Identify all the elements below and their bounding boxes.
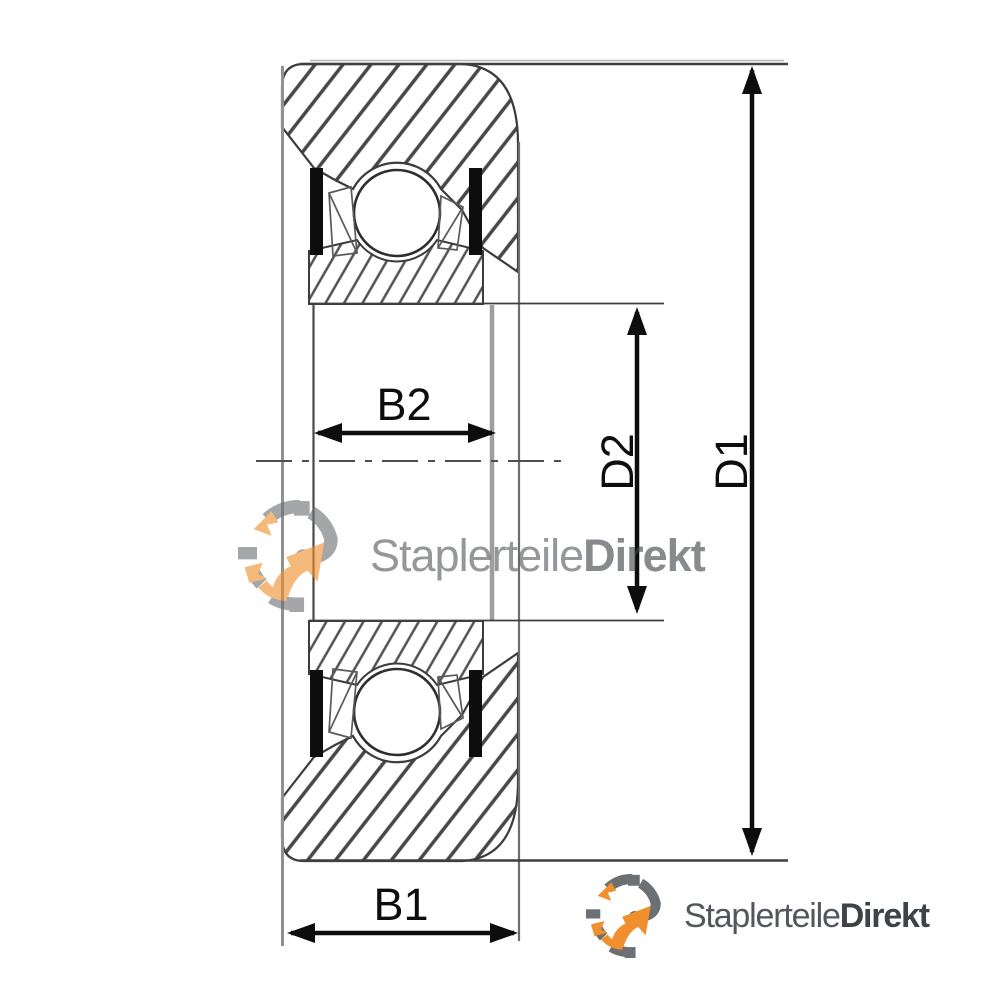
watermark-brand-bold: Direkt bbox=[583, 530, 705, 581]
ball-top bbox=[354, 170, 440, 256]
b1-arrowhead-right bbox=[490, 923, 518, 943]
dimension-label-b1: B1 bbox=[373, 879, 428, 930]
upper-bearing-section bbox=[282, 64, 518, 304]
b1-arrowhead-left bbox=[287, 923, 315, 943]
page: B2 B1 D2 D1 bbox=[0, 0, 1000, 1000]
footer-brand-logo: StaplerteileDirekt bbox=[586, 874, 929, 958]
d2-arrowhead-top bbox=[627, 307, 647, 335]
dimension-b1: B1 bbox=[287, 879, 518, 943]
seal-top-left bbox=[310, 168, 323, 255]
logo-gear-arrows-icon bbox=[586, 874, 670, 958]
dimension-d1: D1 bbox=[706, 66, 762, 856]
watermark-brand-regular: Staplerteile bbox=[370, 530, 583, 581]
seal-bottom-right bbox=[469, 670, 482, 757]
logo-brand-bold: Direkt bbox=[840, 897, 929, 935]
logo-brand-text: StaplerteileDirekt bbox=[684, 897, 929, 936]
seal-bottom-left bbox=[310, 670, 323, 757]
logo-brand-regular: Staplerteile bbox=[684, 897, 840, 935]
center-watermark: StaplerteileDirekt bbox=[238, 500, 705, 612]
watermark-brand-text: StaplerteileDirekt bbox=[370, 530, 705, 582]
watermark-gear-arrows-icon bbox=[238, 500, 350, 612]
dimension-b2: B2 bbox=[314, 379, 496, 443]
dimension-label-d1: D1 bbox=[706, 433, 757, 491]
dimension-label-d2: D2 bbox=[592, 433, 643, 491]
d1-arrowhead-top bbox=[742, 66, 762, 94]
dimension-label-b2: B2 bbox=[376, 379, 431, 430]
seal-top-right bbox=[469, 168, 482, 255]
lower-bearing-section bbox=[282, 621, 518, 861]
ball-bottom bbox=[354, 669, 440, 755]
d1-arrowhead-bottom bbox=[742, 828, 762, 856]
b2-arrowhead-left bbox=[314, 423, 342, 443]
